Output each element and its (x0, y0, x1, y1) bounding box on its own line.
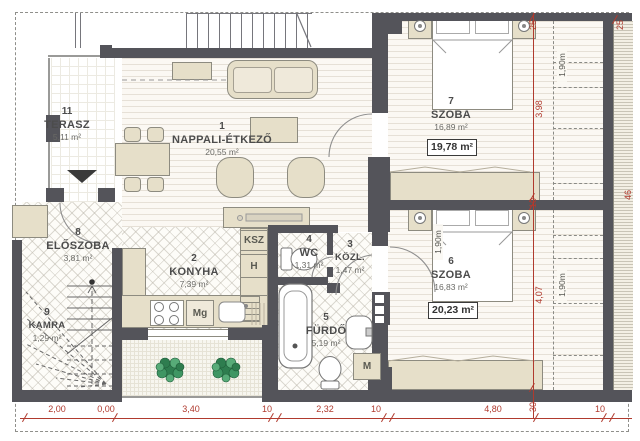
room-label-kamra: 9 KAMRA 1,29 m² (16, 307, 78, 344)
wall-bedroom-divider (388, 200, 613, 210)
wall (100, 45, 112, 58)
h-text: H (250, 261, 257, 272)
headroom-label-bedroom7: 1,90m (557, 47, 567, 83)
room-name: TERASZ (36, 118, 98, 132)
dim-label: 2,00 (42, 404, 72, 414)
room-area: 16,89 m² (412, 122, 490, 133)
dim-label: 30 (528, 392, 538, 422)
wall (372, 13, 632, 21)
dim-label-edge: 25 (615, 10, 625, 40)
room-area: 1,47 m² (329, 265, 371, 276)
entrance-arrow-icon (67, 170, 97, 183)
wall (112, 48, 378, 58)
kitchen-window (148, 329, 228, 337)
roof-slope-line (553, 235, 603, 236)
roof-slope-line (553, 183, 603, 184)
room-number: 2 (155, 253, 233, 265)
room-name: FÜRDŐ (301, 324, 351, 338)
room-label-kozl: 3 KÖZL. 1,47 m² (329, 239, 371, 276)
cabinet-h-label: H (240, 254, 268, 278)
room-label-wc: 4 WC 1,31 m² (287, 234, 331, 271)
room-number: 8 (41, 227, 115, 239)
wall (112, 328, 148, 340)
wall (278, 225, 338, 233)
room-area: 1,31 m² (287, 260, 331, 271)
dimension-line-bottom (20, 418, 632, 419)
roof-slope-line (553, 258, 603, 259)
wall (46, 188, 64, 202)
wall (112, 248, 122, 390)
room-name: KAMRA (16, 319, 78, 333)
wall (372, 21, 388, 113)
dim-label: 3,98 (534, 94, 544, 124)
armchair (216, 157, 254, 198)
sofa-cushion (233, 67, 272, 93)
wall (278, 390, 632, 402)
headroom-label-bedroom6: 1,90m (557, 267, 567, 303)
gross-area-szoba7: 19,78 m² (427, 139, 477, 156)
room-number: 1 (160, 121, 284, 133)
dim-label: 10 (585, 404, 615, 414)
sideboard-bedroom7 (390, 172, 540, 202)
m-text: M (363, 361, 371, 372)
room-area: 16,83 m² (412, 282, 490, 293)
room-area: 3,81 m² (41, 253, 115, 264)
wall (278, 277, 328, 285)
headroom-line-bedroom6 (553, 210, 554, 390)
wall (368, 157, 390, 232)
wall (268, 225, 278, 325)
roof-slope-line (553, 87, 603, 88)
room-label-nappali: 1 NAPPALI-ÉTKEZŐ 20,55 m² (160, 121, 284, 158)
floor-patio (122, 340, 262, 396)
room-number: 3 (329, 239, 371, 251)
room-number: 5 (301, 312, 351, 324)
dining-chair (147, 177, 164, 192)
room-area: 7,39 m² (155, 279, 233, 290)
room-name: SZOBA (412, 268, 490, 282)
room-area: 20,55 m² (160, 147, 284, 158)
dim-label: 10 (252, 404, 282, 414)
sideboard-bedroom6 (388, 360, 543, 390)
bed-length-label: 1,90m (433, 224, 443, 260)
patio-edge (122, 396, 262, 398)
dim-label: 10 (361, 404, 391, 414)
washing-machine-label: M (353, 353, 381, 380)
dishwasher-mg-label: Mg (186, 300, 214, 326)
room-label-konyha: 2 KONYHA 7,39 m² (155, 253, 233, 290)
room-label-szoba7: 7 SZOBA 16,89 m² (412, 96, 490, 133)
room-label-szoba6: 6 SZOBA 16,83 m² (412, 256, 490, 293)
mg-text: Mg (193, 308, 207, 319)
room-area: 5,19 m² (301, 338, 351, 349)
dim-label: 4,80 (478, 404, 508, 414)
wall (327, 283, 340, 293)
roof-slope-line (553, 355, 603, 356)
room-name: KONYHA (155, 265, 233, 279)
dim-label-edge: 46 (623, 180, 633, 210)
dim-label: 10 (528, 188, 538, 218)
room-number: 4 (287, 234, 331, 246)
floor-plan: KSZ H Mg M 1 NAPPALI-ÉTKEZŐ 20,55 m² 2 K… (0, 0, 640, 441)
wall (228, 328, 268, 340)
dining-chair (124, 127, 141, 142)
dim-label: 4,07 (534, 280, 544, 310)
ksz-text: KSZ (244, 235, 264, 246)
wall (12, 390, 122, 402)
room-name: KÖZL. (329, 251, 371, 265)
side-table (172, 62, 212, 80)
room-name: SZOBA (412, 108, 490, 122)
room-number: 7 (412, 96, 490, 108)
wall (603, 21, 613, 390)
room-name: ELŐSZOBA (41, 239, 115, 253)
sofa-cushion (274, 67, 313, 93)
room-number: 6 (412, 256, 490, 268)
gross-area-szoba6: 20,23 m² (428, 302, 478, 319)
dim-label: 3,40 (176, 404, 206, 414)
room-name: NAPPALI-ÉTKEZŐ (160, 133, 284, 147)
roof-slope-line (553, 128, 603, 129)
roof-slope-line (553, 303, 603, 304)
dim-label: 25 (528, 10, 538, 40)
headroom-line-bedroom7 (553, 21, 554, 200)
lamp-icon (414, 20, 426, 32)
room-area: 5,11 m² (36, 132, 98, 143)
dim-label: 2,32 (310, 404, 340, 414)
dining-chair (124, 177, 141, 192)
drawer-cabinet (240, 296, 260, 322)
room-label-eloszoba: 8 ELŐSZOBA 3,81 m² (41, 227, 115, 264)
room-number: 9 (16, 307, 78, 319)
wall (98, 188, 115, 202)
stove (150, 300, 184, 326)
room-name: WC (287, 246, 331, 260)
room-label-furdo: 5 FÜRDŐ 5,19 m² (301, 312, 351, 349)
cabinet-ksz-label: KSZ (240, 230, 268, 251)
armchair (287, 157, 325, 198)
room-label-terasz: 11 TERASZ 5,11 m² (36, 106, 98, 143)
lamp-icon (414, 212, 426, 224)
railing (186, 13, 312, 49)
dim-label: 0,00 (91, 404, 121, 414)
wall-plumbing-shaft (372, 292, 390, 325)
room-number: 11 (36, 106, 98, 118)
fence-post (75, 13, 81, 48)
wall (372, 232, 388, 246)
room-area: 1,29 m² (16, 333, 78, 344)
pillow (475, 210, 509, 226)
